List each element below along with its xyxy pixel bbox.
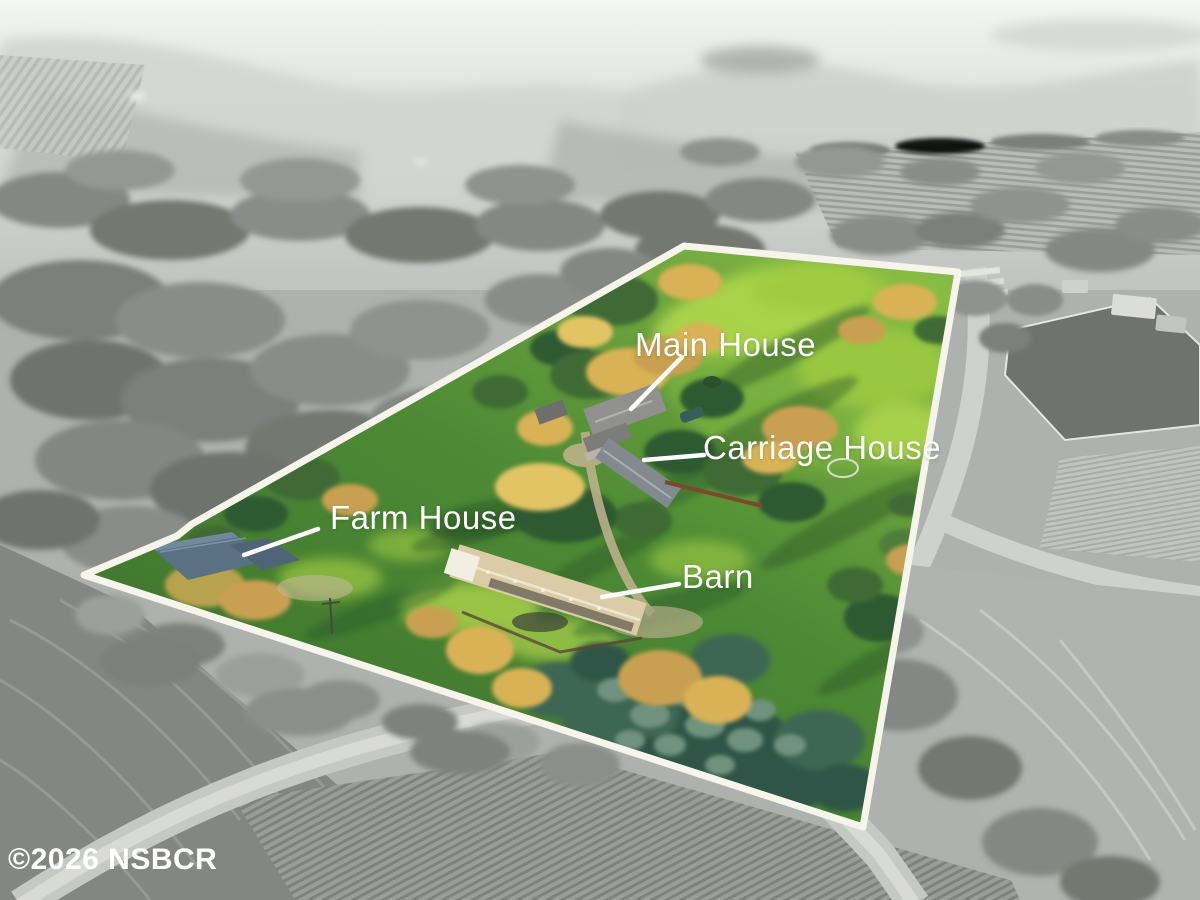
aerial-scene [0,0,1200,900]
label-main-house: Main House [635,328,816,361]
label-barn: Barn [682,560,754,593]
furrow-field-right [1040,446,1200,562]
label-carriage-house: Carriage House [703,431,941,464]
aerial-photo: Main House Carriage House Farm House Bar… [0,0,1200,900]
palm-tree [703,376,721,388]
watermark-copyright: ©2026 NSBCR [8,843,217,877]
label-farm-house: Farm House [330,501,517,534]
vineyard-top-left [0,55,145,162]
